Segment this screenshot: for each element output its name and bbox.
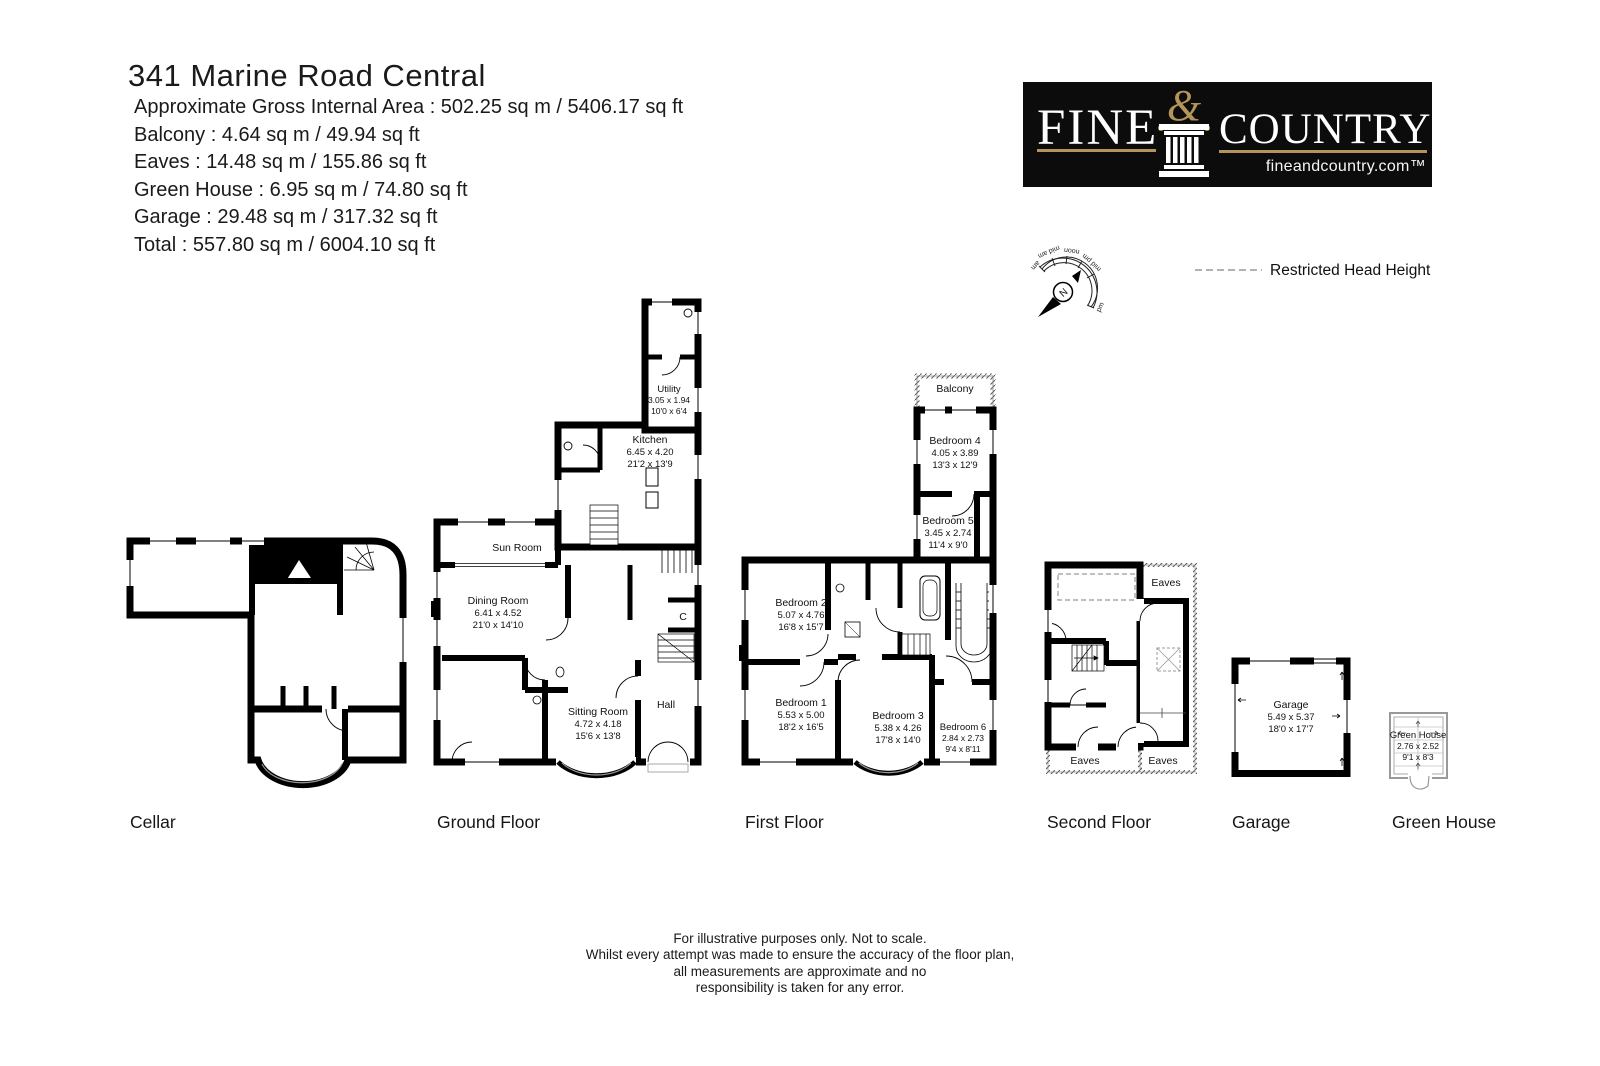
- bedroom3-imperial: 17'8 x 14'0: [875, 735, 920, 746]
- floor-label-ground: Ground Floor: [437, 812, 540, 832]
- sitting-name: Sitting Room: [568, 706, 628, 718]
- bedroom3-metric: 5.38 x 4.26: [874, 723, 921, 734]
- greenhouse-name: Green House: [1390, 730, 1447, 741]
- bedroom1-name: Bedroom 1: [775, 697, 827, 709]
- greenhouse-metric: 2.76 x 2.52: [1397, 741, 1439, 751]
- second-right-room: [1140, 601, 1186, 744]
- hall-name: Hall: [657, 699, 675, 711]
- garage-plan: Garage 5.49 x 5.37 18'0 x 17'7: [1232, 658, 1350, 777]
- compass-noon: noon: [1064, 246, 1080, 255]
- sitting-metric: 4.72 x 4.18: [574, 719, 621, 730]
- utility-metric: 3.05 x 1.94: [648, 395, 690, 405]
- kitchen-metric: 6.45 x 4.20: [626, 447, 673, 458]
- bedroom5-metric: 3.45 x 2.74: [924, 528, 971, 539]
- bedroom6-name: Bedroom 6: [940, 722, 986, 733]
- greenhouse-plan: Green House 2.76 x 2.52 9'1 x 8'3: [1390, 713, 1447, 789]
- compass-pm: pm: [1095, 301, 1106, 313]
- ground-kitchen-outline: [558, 425, 698, 547]
- bedroom6-metric: 2.84 x 2.73: [942, 733, 984, 743]
- sitting-imperial: 15'6 x 13'8: [575, 731, 620, 742]
- sunroom-name: Sun Room: [492, 542, 542, 554]
- balcony-name: Balcony: [936, 383, 974, 395]
- greenhouse-imperial: 9'1 x 8'3: [1402, 752, 1433, 762]
- kitchen-imperial: 21'2 x 13'9: [627, 459, 672, 470]
- floor-label-garage: Garage: [1232, 812, 1290, 832]
- floor-label-cellar: Cellar: [130, 812, 176, 832]
- bedroom4-imperial: 13'3 x 12'9: [932, 460, 977, 471]
- bedroom4-metric: 4.05 x 3.89: [931, 448, 978, 459]
- utility-imperial: 10'0 x 6'4: [651, 406, 687, 416]
- compass-mid-am: mid am: [1037, 244, 1061, 259]
- floor-label-first: First Floor: [745, 812, 824, 832]
- bedroom2-imperial: 16'8 x 15'7: [778, 622, 823, 633]
- compass-icon: N am mid am noon mid pm pm: [1029, 244, 1106, 317]
- garage-metric: 5.49 x 5.37: [1267, 712, 1314, 723]
- eaves-label-bottom-left: Eaves: [1070, 755, 1099, 767]
- kitchen-name: Kitchen: [632, 434, 667, 446]
- garage-imperial: 18'0 x 17'7: [1268, 724, 1313, 735]
- cupboard-label: C: [679, 611, 687, 623]
- utility-name: Utility: [657, 384, 680, 395]
- second-floor-plan: Eaves Eaves Eaves: [1044, 565, 1195, 772]
- eaves-label-top: Eaves: [1151, 577, 1180, 589]
- legend-restricted-head-height: Restricted Head Height: [1195, 262, 1431, 279]
- disclaimer-line-1: For illustrative purposes only. Not to s…: [300, 931, 1300, 947]
- dining-name: Dining Room: [468, 595, 529, 607]
- eaves-label-bottom-right: Eaves: [1148, 755, 1177, 767]
- floor-label-second: Second Floor: [1047, 812, 1151, 832]
- cellar-plan: [126, 537, 407, 785]
- bedroom5-name: Bedroom 5: [922, 515, 974, 527]
- floor-labels: Cellar Ground Floor First Floor Second F…: [130, 812, 1496, 832]
- bedroom1-imperial: 18'2 x 16'5: [778, 722, 823, 733]
- bedroom1-metric: 5.53 x 5.00: [777, 710, 824, 721]
- bedroom2-name: Bedroom 2: [775, 597, 827, 609]
- disclaimer-line-2: Whilst every attempt was made to ensure …: [300, 947, 1300, 963]
- disclaimer-block: For illustrative purposes only. Not to s…: [300, 931, 1300, 996]
- floor-label-greenhouse: Green House: [1392, 812, 1496, 832]
- disclaimer-line-3: all measurements are approximate and no: [300, 964, 1300, 980]
- bedroom3-name: Bedroom 3: [872, 710, 924, 722]
- legend-label: Restricted Head Height: [1270, 262, 1431, 279]
- dining-metric: 6.41 x 4.52: [474, 608, 521, 619]
- bedroom4-name: Bedroom 4: [929, 435, 981, 447]
- bedroom5-imperial: 11'4 x 9'0: [928, 540, 967, 551]
- disclaimer-line-4: responsibility is taken for any error.: [300, 980, 1300, 996]
- compass-am: am: [1029, 259, 1041, 271]
- bedroom2-metric: 5.07 x 4.76: [777, 610, 824, 621]
- ground-floor-plan: Utility 3.05 x 1.94 10'0 x 6'4 Kitchen 6…: [431, 298, 702, 776]
- bedroom6-imperial: 9'4 x 8'11: [945, 744, 980, 754]
- first-floor-plan: Balcony Bedroom 4 4.05 x 3.89 13'3 x 12'…: [739, 376, 997, 773]
- garage-name: Garage: [1273, 699, 1308, 711]
- floorplan-canvas: N am mid am noon mid pm pm Restricted He…: [0, 0, 1600, 1066]
- dining-imperial: 21'0 x 14'10: [473, 620, 524, 631]
